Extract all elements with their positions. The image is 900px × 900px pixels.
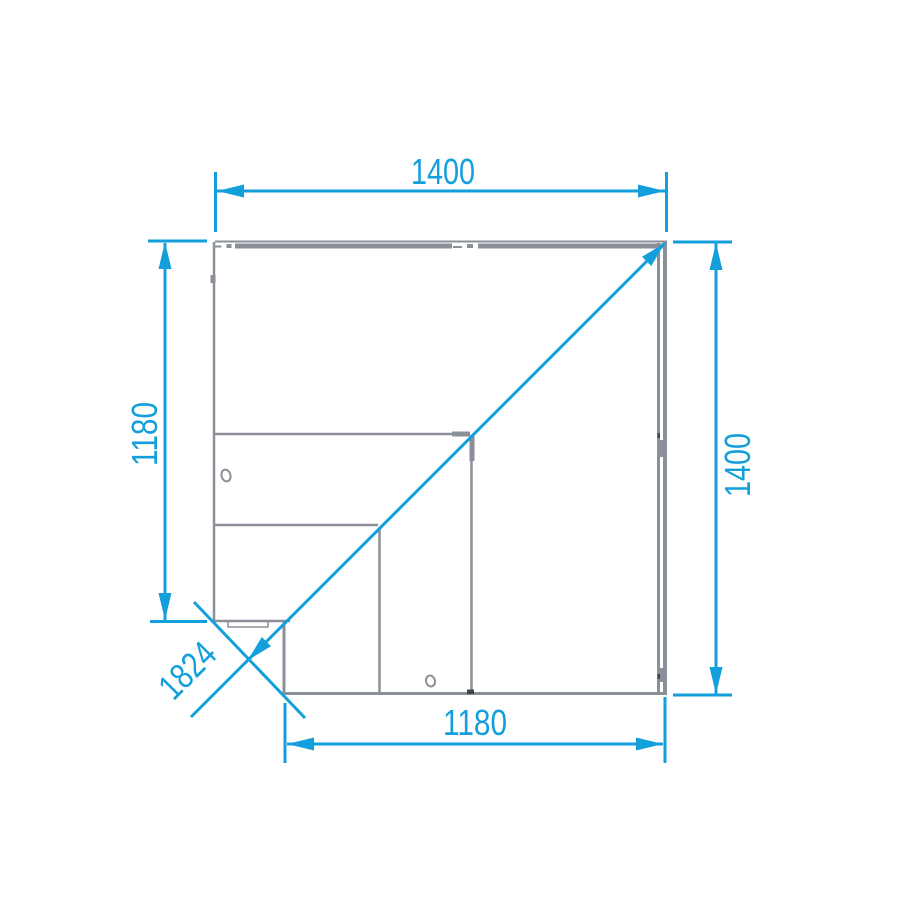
- arrowhead-right-icon: [638, 185, 665, 198]
- panel-joint-dash: [214, 246, 222, 248]
- dimension-label-right: 1400: [717, 433, 758, 497]
- hinge-mark: [658, 674, 661, 679]
- right-wall-joint: [660, 668, 664, 682]
- door-lock-icon: [220, 469, 232, 483]
- shelf-end-cap: [452, 432, 470, 437]
- arrowhead-left-icon: [217, 185, 244, 198]
- joint-marks: [467, 433, 660, 694]
- dimension-lines-group: [148, 172, 732, 763]
- panel-joint-tick: [211, 275, 216, 283]
- corner-counter-drawing: 1400 1180 1400 1180 1824: [0, 0, 900, 900]
- panel-joint-dot: [227, 244, 232, 248]
- arrowhead-right-icon: [636, 738, 663, 751]
- dimension-label-left: 1180: [124, 402, 165, 466]
- panel-joint-dash: [453, 246, 462, 248]
- door-lock-icon: [425, 675, 437, 688]
- top-wall-band-right: [478, 244, 665, 249]
- hinge-mark: [658, 433, 661, 438]
- arrowhead-up-icon: [159, 242, 172, 269]
- corner-front-panel: [228, 622, 268, 627]
- dimension-drawing-canvas: 1400 1180 1400 1180 1824: [0, 0, 900, 900]
- arrowhead-left-icon: [287, 738, 314, 751]
- right-wall-joint: [660, 440, 664, 457]
- dimension-label-top: 1400: [411, 151, 475, 192]
- arrowhead-down-icon: [710, 667, 723, 694]
- arrowhead-down-icon: [159, 593, 172, 620]
- divider-foot-mark: [467, 690, 474, 695]
- panel-joint-dot: [467, 244, 473, 248]
- dimension-label-bottom: 1180: [443, 702, 507, 743]
- arrowhead-up-icon: [710, 243, 723, 270]
- top-wall-band-left: [235, 244, 452, 249]
